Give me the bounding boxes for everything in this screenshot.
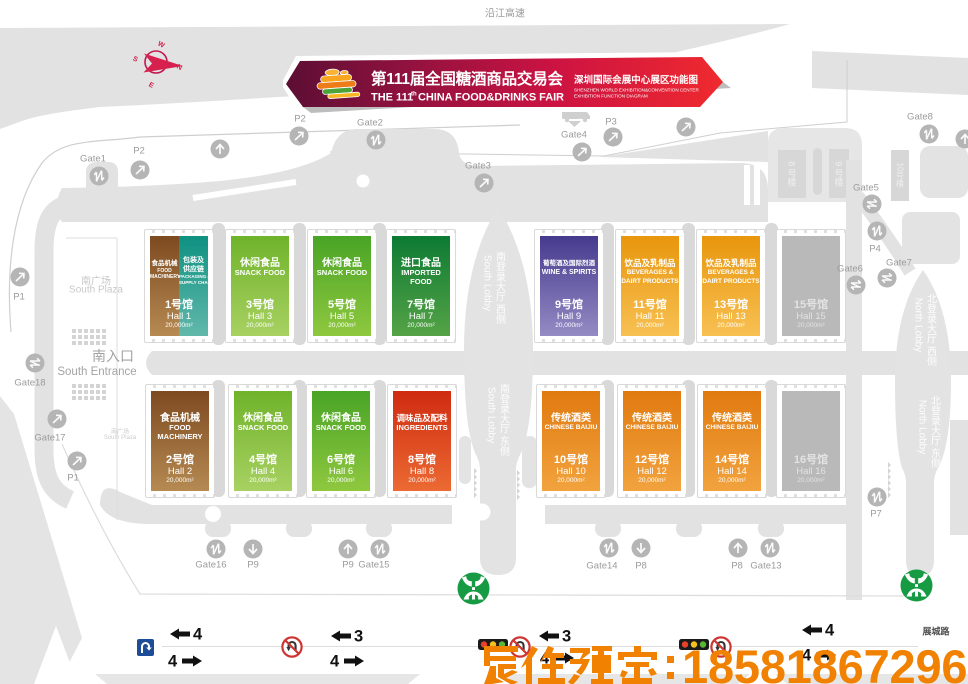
svg-text:4: 4 xyxy=(330,654,340,668)
svg-text:SHENZHEN WORLD EXHIBITION&CONV: SHENZHEN WORLD EXHIBITION&CONVENTION CEN… xyxy=(574,88,699,93)
svg-text:4: 4 xyxy=(168,654,178,668)
svg-text:4: 4 xyxy=(193,627,203,641)
svg-text:S: S xyxy=(131,55,139,64)
svg-text:3: 3 xyxy=(354,629,363,643)
svg-text:CHINA FOOD&DRINKS FAIR: CHINA FOOD&DRINKS FAIR xyxy=(418,92,564,104)
svg-text:第111届全国糖酒商品交易会: 第111届全国糖酒商品交易会 xyxy=(371,69,563,88)
svg-text:3: 3 xyxy=(562,629,571,643)
svg-text:18581867296: 18581867296 xyxy=(682,644,966,684)
svg-text:W: W xyxy=(156,40,165,49)
svg-text:E: E xyxy=(147,81,155,90)
svg-text:THE 111: THE 111 xyxy=(371,92,413,104)
svg-text:4: 4 xyxy=(825,623,835,637)
svg-text:深圳国际会展中心展区功能图: 深圳国际会展中心展区功能图 xyxy=(574,74,698,86)
svg-text:th: th xyxy=(411,92,417,98)
svg-text:EXHIBITION FUNCTION DIAGRAM: EXHIBITION FUNCTION DIAGRAM xyxy=(574,94,648,99)
